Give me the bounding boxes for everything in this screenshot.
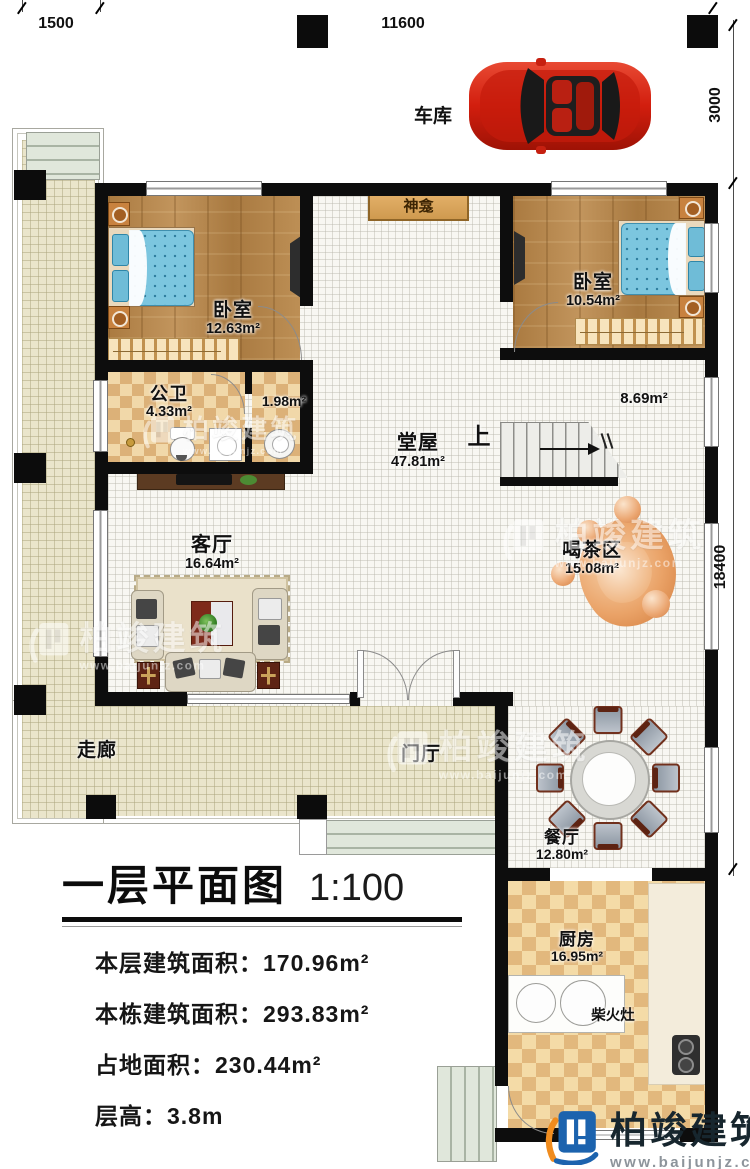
shower-tray	[209, 428, 242, 461]
kitchen-label: 厨房 16.95m²	[538, 930, 616, 965]
dimension-garage-depth: 3000	[707, 75, 725, 135]
wall-south-hall	[108, 692, 187, 706]
entry-steps-bottom	[318, 820, 504, 855]
dining-room-label: 餐厅 12.80m²	[526, 828, 598, 863]
wall-bedroom-left	[300, 196, 313, 306]
porch-column	[14, 685, 46, 715]
floor-plan: 1500 11600 3000 18400 车库	[0, 0, 750, 1169]
bedroom-left-label: 卧室 12.63m²	[185, 300, 281, 338]
title-underline	[62, 917, 462, 922]
column-pedestal	[299, 819, 327, 855]
title-underline-thin	[62, 926, 462, 927]
wall-kitchen-west	[495, 706, 508, 1086]
porch-column	[14, 453, 46, 483]
column	[297, 15, 328, 48]
pillow	[688, 227, 705, 257]
plan-title: 一层平面图	[62, 852, 287, 913]
window-south-living	[187, 694, 350, 704]
armchair	[131, 590, 164, 660]
wash-area-label: 1.98m²	[252, 394, 316, 410]
bed	[108, 227, 195, 307]
window-east-bedroom	[704, 223, 719, 293]
nightstand	[108, 202, 130, 226]
stat-footprint: 占地面积：230.44m²	[95, 1046, 462, 1080]
pillow	[112, 234, 129, 266]
dining-chair	[536, 764, 564, 793]
dining-table-top	[582, 752, 636, 806]
tea-stool	[642, 590, 670, 618]
dimension-building-width: 11600	[366, 15, 440, 33]
french-door-leaf	[357, 650, 364, 698]
foyer-label: 门厅	[392, 744, 450, 765]
washbasin	[264, 429, 295, 459]
stair-arrow-head	[588, 443, 600, 455]
dimension-building-depth: 18400	[712, 529, 730, 605]
sofa	[165, 652, 256, 692]
window-bedroom-right	[551, 181, 667, 196]
tv	[514, 231, 525, 285]
bedroom-right-label: 卧室 10.54m²	[545, 272, 641, 310]
car-top-view	[466, 54, 654, 158]
stairs-up-label: 上	[463, 424, 495, 450]
living-room-label: 客厅 16.64m²	[166, 534, 258, 573]
nightstand	[679, 197, 704, 219]
dim-tick	[708, 2, 718, 15]
armchair	[252, 588, 288, 660]
wall-dining-kitchen	[652, 868, 705, 881]
bed-sheet	[129, 230, 147, 306]
pillow	[688, 261, 705, 291]
bed-sheet	[668, 223, 686, 295]
dimension-porch-width: 1500	[26, 15, 86, 33]
dining-chair	[594, 706, 623, 734]
gas-stove	[672, 1035, 700, 1075]
nightstand	[679, 296, 704, 318]
plan-scale: 1:100	[309, 867, 404, 910]
window-east-landing	[704, 377, 719, 447]
column	[687, 15, 718, 48]
side-table	[137, 662, 160, 689]
window-west-living	[93, 510, 108, 657]
side-table	[257, 662, 280, 689]
tea-area-label: 喝茶区 15.08m²	[546, 540, 638, 578]
brand-name: 柏竣建筑	[610, 1100, 750, 1154]
wall-bathroom-south	[108, 462, 313, 474]
stat-floor-height: 层高：3.8m	[95, 1097, 462, 1131]
wardrobe	[575, 318, 703, 345]
toilet	[168, 427, 195, 463]
wall-east	[705, 196, 718, 1140]
stat-floor-area: 本层建筑面积：170.96m²	[95, 944, 462, 978]
brand-logo-icon	[544, 1107, 602, 1165]
floor-drain	[126, 438, 135, 447]
wall-stairs	[500, 477, 618, 486]
pillow	[112, 270, 129, 302]
stair-arrow-line	[540, 448, 590, 450]
wall-south-hall	[453, 692, 513, 706]
wall-bathroom-divider	[245, 428, 252, 462]
hall-label: 堂屋 47.81m²	[374, 432, 462, 471]
porch-column	[14, 170, 46, 200]
tea-stool	[614, 496, 641, 523]
window-west-bathroom	[93, 380, 108, 452]
corridor-label: 走廊	[66, 740, 128, 761]
window-east-dining	[704, 747, 719, 833]
shrine-label: 神龛	[403, 195, 433, 216]
brand-url: www.baijunjz.com	[610, 1154, 750, 1169]
wall-dining-kitchen	[508, 868, 550, 881]
right-dimension-line	[733, 20, 734, 876]
wood-stove-label: 柴火灶	[578, 1008, 648, 1024]
stat-total-area: 本栋建筑面积：293.83m²	[95, 995, 462, 1029]
brand-footer: 柏竣建筑 www.baijunjz.com	[544, 1100, 750, 1169]
title-block: 一层平面图 1:100 本层建筑面积：170.96m² 本栋建筑面积：293.8…	[62, 852, 462, 1131]
stair-zone-label: 8.69m²	[608, 391, 680, 408]
wall-bedroom-left-south	[108, 360, 300, 372]
wall-bathroom-divider	[245, 372, 252, 394]
plant	[199, 614, 217, 632]
wall-bedroom-left	[300, 360, 313, 474]
window-bedroom-left	[146, 181, 262, 196]
dim-tick	[17, 2, 27, 15]
wall-bedroom-right	[500, 196, 513, 302]
french-door-leaf	[453, 650, 460, 698]
garage-label: 车库	[404, 101, 462, 128]
porch-column	[297, 795, 327, 819]
stove-pot	[516, 983, 556, 1023]
porch-column	[86, 795, 116, 819]
bathroom-label: 公卫 4.33m²	[128, 384, 210, 420]
dim-tick	[95, 2, 105, 15]
nightstand	[108, 306, 130, 329]
dining-chair	[652, 764, 680, 793]
